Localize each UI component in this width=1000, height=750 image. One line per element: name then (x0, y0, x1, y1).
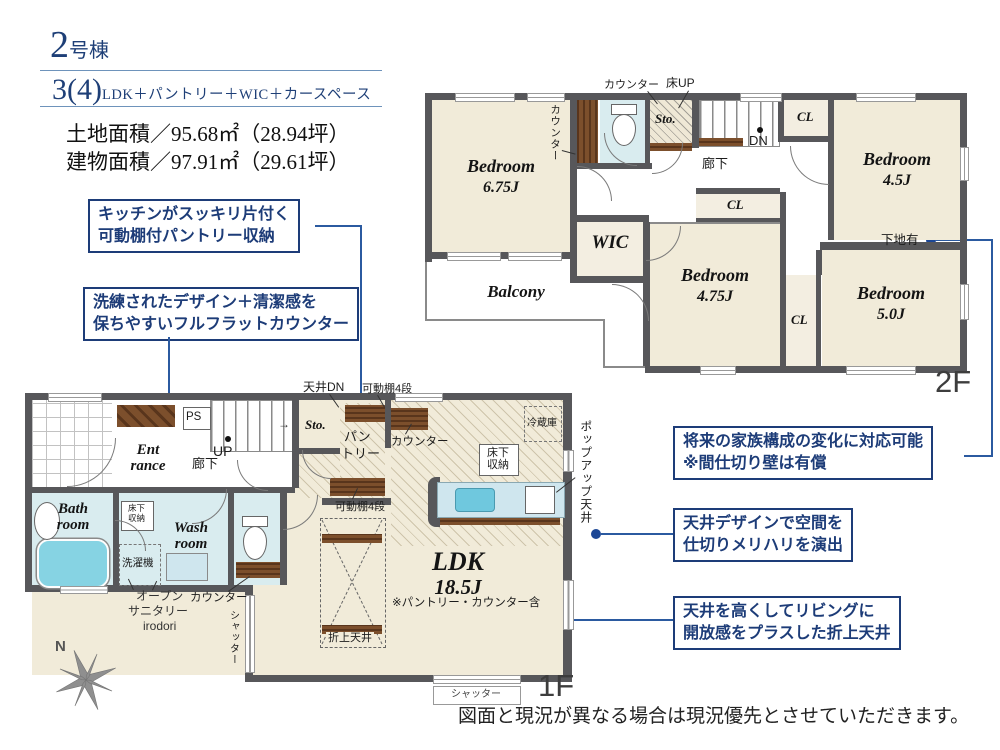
disclaimer-text: 図面と現況が異なる場合は現況優先とさせていただきます。 (458, 701, 969, 728)
shutter-bottom-label: シャッター (433, 689, 519, 701)
ldk-note: ※パントリー・カウンター含 (392, 597, 540, 610)
callout-ceiling-line2: 仕切りメリハリを演出 (683, 535, 843, 557)
popup-ceiling-label: ポップアップ天井 (578, 420, 592, 530)
wall (816, 275, 821, 366)
window (455, 93, 515, 102)
door-arc (577, 166, 612, 201)
counter-label-2f-top: カウンター (604, 79, 659, 92)
bedroom475-name: Bedroom (650, 266, 780, 285)
bedroom675-size: 6.75J (432, 180, 570, 197)
entrance-label1: Ent (115, 443, 181, 459)
balcony-rail (603, 366, 651, 368)
window (563, 450, 574, 472)
toilet-counter-wood (236, 562, 280, 578)
stove-icon (525, 486, 555, 514)
wall (816, 250, 822, 275)
building-suffix: 号棟 (69, 40, 109, 62)
up-dot (225, 436, 231, 442)
wic-label: WIC (577, 233, 643, 253)
compass-north-label: N (55, 638, 66, 655)
connector-line (964, 455, 993, 457)
plan-text: LDK＋パントリー＋WIC＋カースペース (102, 87, 371, 103)
wall (577, 276, 649, 283)
storage-label-2f: Sto. (655, 112, 676, 126)
callout-pantry-line2: 可動棚付パントリー収納 (98, 226, 290, 248)
wall (245, 675, 572, 682)
window (846, 366, 916, 375)
wall (692, 98, 699, 148)
kitchen-counter-label: カウンター (391, 436, 449, 449)
plan-type: 3(4)LDK＋パントリー＋WIC＋カースペース (52, 74, 371, 106)
wall (570, 100, 577, 283)
coffered-label: 折上天井 (326, 632, 374, 645)
bedroom45-name: Bedroom (834, 150, 960, 169)
bathroom-label1: Bath (39, 502, 107, 518)
callout-pantry-line1: キッチンがスッキリ片付く (98, 204, 290, 226)
connector-line (315, 225, 362, 227)
door-arc (652, 143, 683, 174)
closet-label-mid: CL (727, 198, 744, 212)
ps-label: PS (186, 411, 201, 424)
folding-door-line (650, 222, 780, 224)
wall (645, 98, 650, 163)
corridor-label-1f: 廊下 (192, 457, 218, 472)
wall (780, 192, 786, 366)
corridor-label-2f: 廊下 (702, 157, 728, 172)
floor-storage-kitchen-label1: 床下 (479, 447, 517, 460)
callout-partition: 将来の家族構成の変化に対応可能 ※間仕切り壁は有償 (673, 426, 933, 480)
connector-dot (591, 529, 601, 539)
balcony-rail (603, 319, 605, 368)
window (856, 93, 916, 102)
washer-label: 洗濯機 (122, 557, 154, 569)
window (447, 252, 501, 261)
window (700, 366, 736, 375)
window (508, 252, 562, 261)
window (60, 586, 108, 594)
storage-label-1f: Sto. (305, 418, 326, 432)
room-bedroom-45 (834, 100, 960, 240)
wall (696, 188, 780, 194)
window (527, 93, 565, 102)
washroom-label2: room (160, 537, 222, 553)
building-number: 2 (50, 24, 69, 66)
floor-storage-kitchen-label2: 収納 (479, 459, 517, 472)
callout-counter: 洗練されたデザイン＋清潔感を 保ちやすいフルフラットカウンター (83, 287, 359, 341)
bedroom675-name: Bedroom (432, 157, 570, 176)
floorplan-page: 2号棟 3(4)LDK＋パントリー＋WIC＋カースペース 土地面積／95.68㎡… (0, 0, 1000, 750)
shelf-top-label: 可動棚4段 (362, 383, 412, 396)
open-sanitary-label1: オープン (136, 590, 183, 604)
divider (40, 70, 382, 71)
wall (778, 136, 834, 142)
dn-label: DN (749, 134, 768, 149)
window (433, 675, 521, 684)
bedroom50-size: 5.0J (822, 307, 960, 324)
wall (563, 393, 572, 682)
shitaji-label: 下地有 (881, 233, 919, 247)
callout-coffered-line1: 天井を高くしてリビングに (683, 601, 891, 623)
ldk-name: LDK (398, 548, 518, 575)
bedroom50-name: Bedroom (822, 284, 960, 303)
window (960, 147, 969, 181)
wood-strip (322, 534, 382, 543)
ceiling-dn-label: 天井DN (303, 381, 344, 395)
counter-label-2f-side: カウンター (549, 104, 561, 162)
pantry-shelf (330, 478, 385, 496)
connector-line (991, 239, 993, 457)
sink-icon (455, 488, 495, 512)
pantry-shelf (345, 405, 385, 422)
callout-coffered: 天井を高くしてリビングに 開放感をプラスした折上天井 (673, 596, 901, 650)
wall (577, 215, 649, 222)
page-title: 2号棟 (50, 26, 109, 64)
bathtub-icon (37, 539, 109, 588)
pantry-label2: トリー (341, 447, 380, 462)
callout-ceiling-line1: 天井デザインで空間を (683, 513, 843, 535)
shoe-cabinet (117, 405, 175, 427)
wall (425, 93, 432, 262)
callout-partition-line1: 将来の家族構成の変化に対応可能 (683, 431, 923, 453)
window (740, 93, 782, 102)
wall (645, 366, 967, 373)
entrance-label2: rance (115, 459, 181, 475)
window (48, 393, 102, 402)
floor-up-label: 床UP (666, 77, 695, 91)
bedroom45-size: 4.5J (834, 173, 960, 190)
plan-number: 3(4) (52, 73, 102, 106)
window (245, 595, 255, 673)
door-arc (790, 146, 829, 185)
balcony-label: Balcony (427, 283, 605, 301)
floor1-label: 1F (538, 668, 574, 704)
floor2-label: 2F (935, 364, 971, 400)
window (960, 284, 969, 320)
callout-coffered-line2: 開放感をプラスした折上天井 (683, 623, 891, 645)
wall (960, 93, 967, 373)
ldk-size: 18.5J (398, 576, 518, 598)
fridge-label: 冷蔵庫 (527, 418, 557, 430)
wall (25, 393, 572, 400)
connector-line (601, 533, 673, 535)
callout-counter-line2: 保ちやすいフルフラットカウンター (93, 314, 349, 336)
washroom-label1: Wash (160, 521, 222, 537)
shelf-bottom-label: 可動棚4段 (335, 501, 385, 514)
window (563, 580, 574, 630)
wall (228, 493, 234, 585)
callout-pantry: キッチンがスッキリ片付く 可動棚付パントリー収納 (88, 199, 300, 253)
land-area: 土地面積／95.68㎡（28.94坪） (66, 118, 350, 148)
bathroom-label2: room (39, 518, 107, 534)
balcony-rail (427, 319, 605, 321)
bedroom475-size: 4.75J (650, 289, 780, 306)
wash-counter (166, 553, 208, 581)
wood-strip (699, 138, 743, 146)
divider (40, 106, 382, 107)
shutter-left-label: シャッター (227, 610, 239, 666)
closet-label-right: CL (791, 313, 808, 327)
callout-ceiling: 天井デザインで空間を 仕切りメリハリを演出 (673, 508, 853, 562)
wash-counter-label: カウンター (190, 592, 248, 605)
pantry-label1: パン (344, 430, 371, 445)
open-sanitary-label3: irodori (143, 620, 176, 634)
open-sanitary-label2: サニタリー (128, 605, 188, 619)
closet-label-top: CL (797, 110, 814, 124)
callout-partition-line2: ※間仕切り壁は有償 (683, 453, 923, 475)
stairs-arrow-icon: → (278, 418, 290, 432)
building-area: 建物面積／97.91㎡（29.61坪） (66, 146, 350, 176)
wall (292, 400, 299, 488)
callout-counter-line1: 洗練されたデザイン＋清潔感を (93, 292, 349, 314)
